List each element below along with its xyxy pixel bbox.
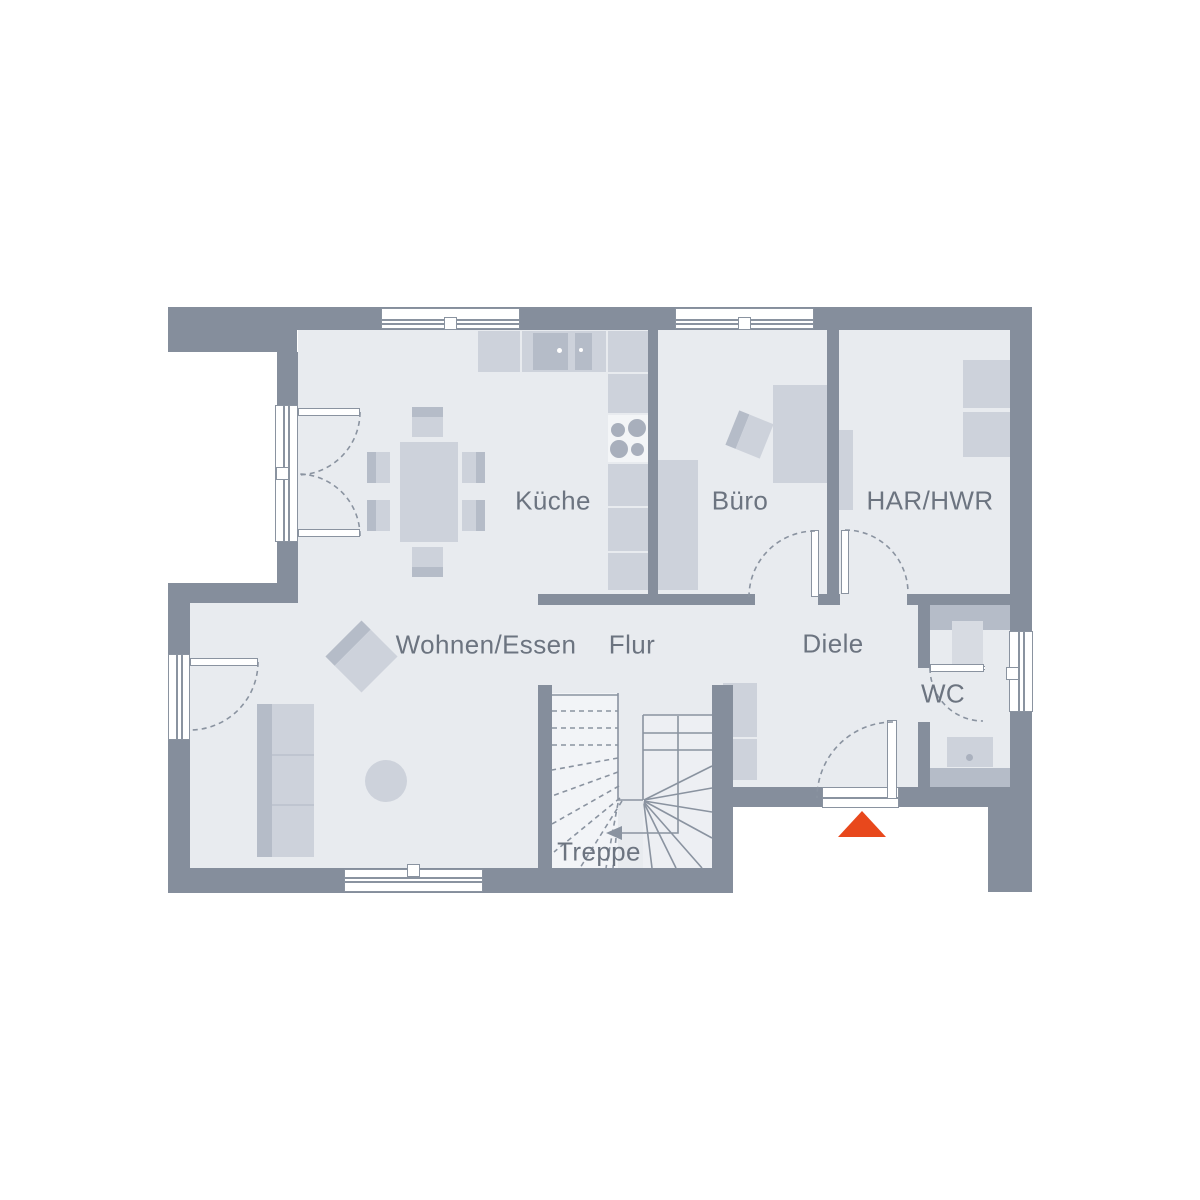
room-label-har-hwr: HAR/HWR (866, 486, 993, 517)
room-label-flur: Flur (609, 630, 655, 661)
garden-door-arc (190, 662, 258, 730)
entrance-door-arc (817, 722, 893, 798)
french-door-arc-bottom (297, 474, 360, 536)
room-label-treppe: Treppe (557, 837, 641, 868)
room-label-diele: Diele (802, 629, 863, 660)
room-label-buero: Büro (712, 486, 769, 517)
room-label-wohnen-essen: Wohnen/Essen (396, 630, 577, 661)
room-label-wc: WC (921, 679, 965, 710)
french-door-arc-top (297, 412, 360, 475)
plan-lines-svg (0, 0, 1200, 1200)
har-door-arc (845, 530, 908, 593)
buero-door-arc (749, 531, 815, 597)
room-label-kueche: Küche (515, 486, 591, 517)
floor-plan-canvas: Küche Büro HAR/HWR Wohnen/Essen Flur Die… (0, 0, 1200, 1200)
entrance-arrow-icon (838, 811, 886, 837)
